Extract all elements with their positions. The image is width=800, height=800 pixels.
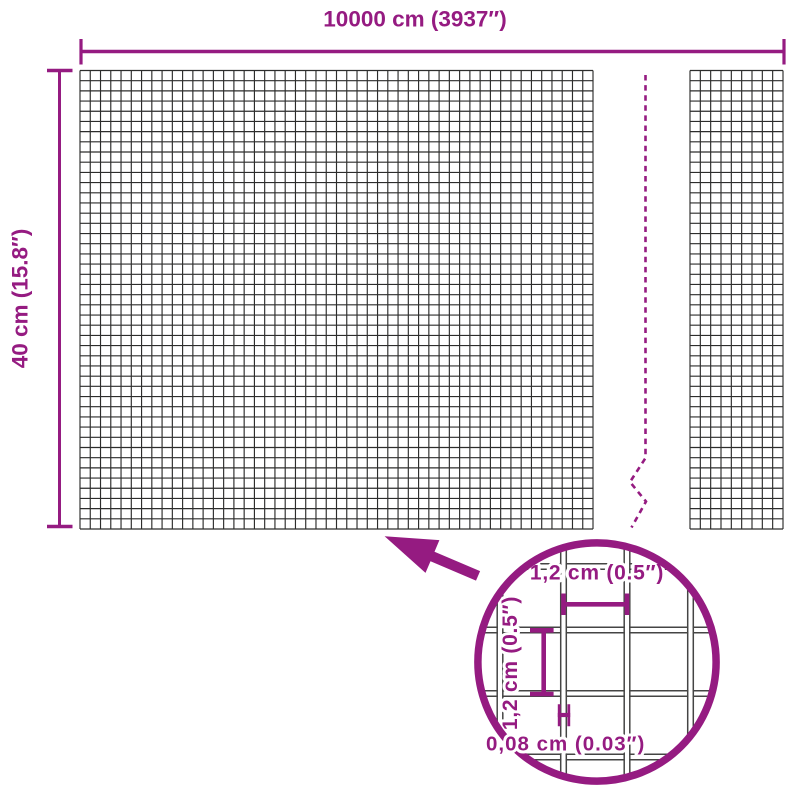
- svg-text:1,2 cm (0.5″): 1,2 cm (0.5″): [499, 596, 522, 730]
- svg-text:40 cm (15.8″): 40 cm (15.8″): [8, 229, 33, 369]
- svg-text:10000 cm (3937″): 10000 cm (3937″): [323, 6, 506, 31]
- svg-text:1,2 cm (0.5″): 1,2 cm (0.5″): [530, 562, 664, 585]
- svg-text:0,08 cm (0.03″): 0,08 cm (0.03″): [486, 733, 645, 756]
